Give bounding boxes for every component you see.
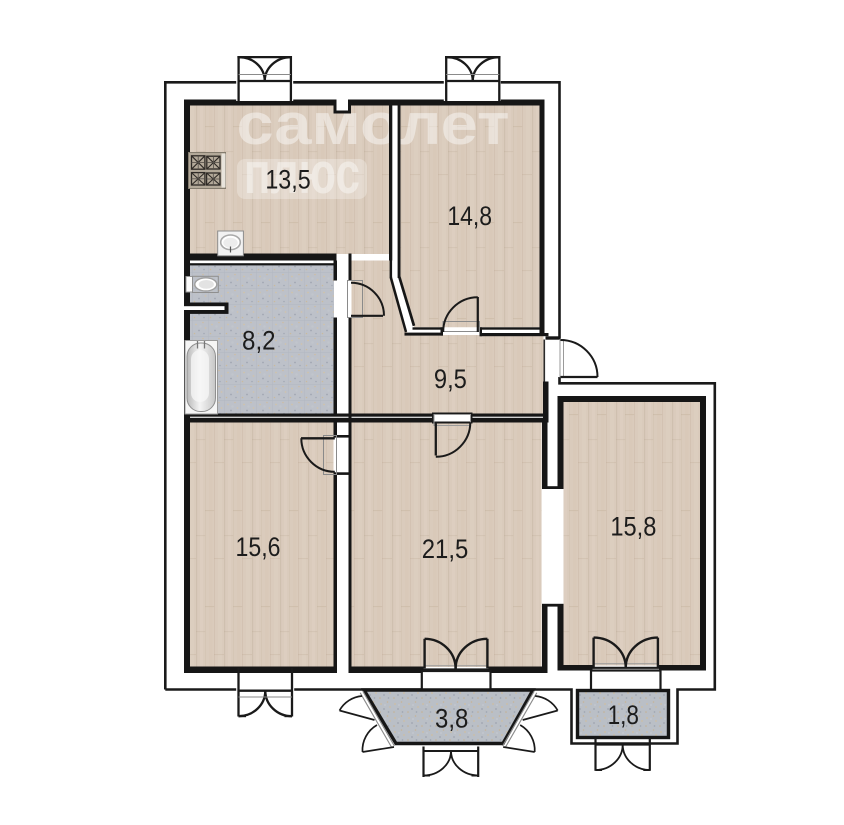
svg-text:14,8: 14,8: [447, 201, 492, 231]
svg-text:3,8: 3,8: [435, 704, 468, 734]
svg-text:15,8: 15,8: [610, 512, 656, 542]
svg-text:9,5: 9,5: [434, 364, 467, 394]
svg-text:1,8: 1,8: [608, 700, 639, 730]
svg-text:15,6: 15,6: [236, 532, 281, 562]
svg-text:13,5: 13,5: [265, 165, 310, 195]
svg-text:21,5: 21,5: [422, 534, 469, 564]
svg-text:8,2: 8,2: [242, 325, 276, 355]
